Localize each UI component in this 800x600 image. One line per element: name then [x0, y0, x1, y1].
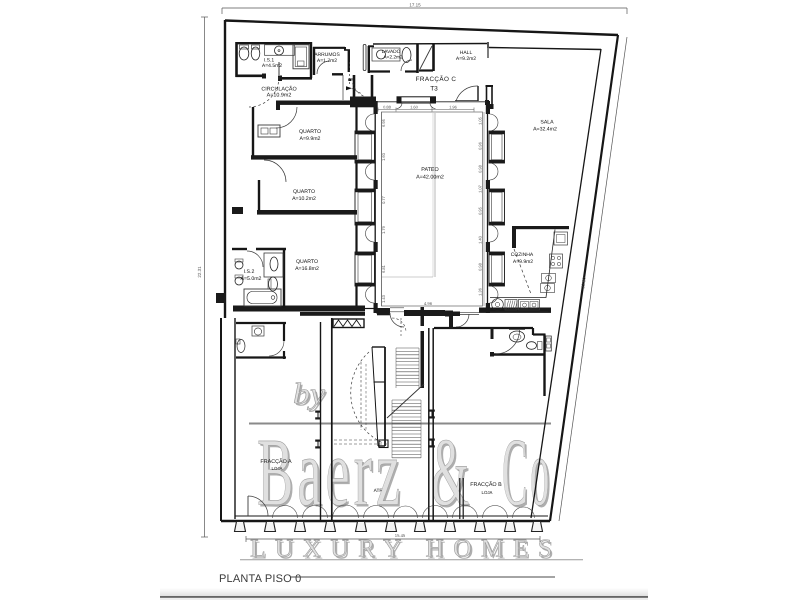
svg-text:1.36: 1.36 [478, 287, 483, 296]
svg-text:1.96: 1.96 [449, 104, 458, 109]
svg-text:FRACÇÃO C: FRACÇÃO C [416, 75, 457, 83]
svg-text:A=10.9m2: A=10.9m2 [267, 93, 292, 99]
svg-text:0.95: 0.95 [478, 206, 483, 215]
svg-text:A=9.9m2: A=9.9m2 [513, 259, 533, 265]
svg-text:A=10.2m2: A=10.2m2 [292, 196, 316, 202]
svg-text:0.96: 0.96 [478, 141, 483, 150]
svg-text:QUARTO: QUARTO [296, 259, 318, 265]
svg-text:A=9.9m2: A=9.9m2 [300, 136, 321, 142]
svg-text:T3: T3 [430, 86, 438, 93]
svg-text:QUARTO: QUARTO [299, 129, 321, 135]
svg-text:1.05: 1.05 [478, 116, 483, 125]
svg-text:Co: Co [502, 419, 552, 526]
svg-text:PATEO: PATEO [421, 167, 438, 173]
svg-text:6.81: 6.81 [381, 264, 386, 273]
svg-text:QUARTO: QUARTO [293, 189, 315, 195]
svg-text:LOJA: LOJA [272, 466, 283, 471]
svg-text:CIRCULAÇÃO: CIRCULAÇÃO [261, 86, 296, 93]
svg-text:PLANTA PISO 0: PLANTA PISO 0 [219, 573, 301, 585]
svg-text:A=9.2m2: A=9.2m2 [456, 56, 476, 62]
svg-text:15.45: 15.45 [395, 533, 406, 538]
svg-text:6.95: 6.95 [381, 118, 386, 127]
svg-text:22.31: 22.31 [197, 266, 202, 278]
svg-text:FRACÇÃO B: FRACÇÃO B [470, 481, 502, 488]
svg-text:A=4.5m2: A=4.5m2 [262, 63, 282, 69]
svg-text:17.15: 17.15 [409, 3, 421, 8]
svg-text:0.98: 0.98 [478, 262, 483, 271]
svg-text:COZINHA: COZINHA [511, 252, 534, 258]
svg-text:1.60: 1.60 [381, 152, 386, 161]
svg-text:A=42.00m2: A=42.00m2 [416, 175, 444, 181]
svg-text:1.40: 1.40 [478, 235, 483, 244]
svg-text:A=16.8m2: A=16.8m2 [295, 266, 319, 272]
svg-text:1.43: 1.43 [381, 294, 386, 303]
svg-text:1.79: 1.79 [381, 225, 386, 234]
svg-text:LOJA: LOJA [482, 490, 493, 495]
svg-text:A=5.0m2: A=5.0m2 [241, 276, 262, 282]
svg-text:A=2.2m2: A=2.2m2 [383, 55, 403, 61]
svg-text:LAVADO: LAVADO [382, 49, 401, 55]
svg-text:0.77: 0.77 [381, 195, 386, 204]
svg-text:FRACÇÃO A: FRACÇÃO A [260, 458, 292, 465]
svg-text:0.88: 0.88 [383, 104, 392, 109]
svg-text:Baerz: Baerz [257, 419, 404, 526]
svg-text:A=1.7m2: A=1.7m2 [317, 58, 337, 64]
svg-text:ATF: ATF [374, 488, 383, 494]
svg-text:I.S.2: I.S.2 [244, 269, 255, 275]
svg-text:0.98: 0.98 [478, 164, 483, 173]
svg-text:SALA: SALA [540, 120, 554, 126]
svg-text:A=32.4m2: A=32.4m2 [533, 127, 557, 133]
svg-text:1.60: 1.60 [410, 104, 419, 109]
svg-text:4.96: 4.96 [424, 301, 433, 306]
svg-text:1.07: 1.07 [478, 184, 483, 193]
